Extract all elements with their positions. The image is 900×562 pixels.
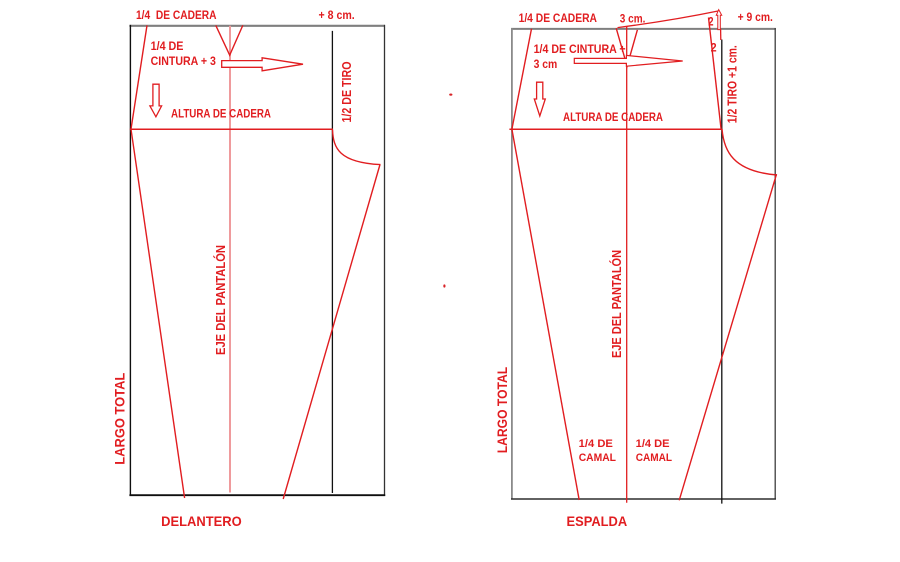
svg-text:2: 2	[708, 17, 713, 29]
svg-text:1/4 DE CINTURA +: 1/4 DE CINTURA +	[534, 44, 626, 56]
svg-text:1/4 DE: 1/4 DE	[151, 41, 184, 53]
svg-text:CAMAL: CAMAL	[579, 452, 617, 464]
svg-text:CAMAL: CAMAL	[636, 452, 673, 464]
svg-text:CINTURA + 3: CINTURA + 3	[151, 56, 216, 68]
svg-text:+ 9 cm.: + 9 cm.	[738, 12, 773, 24]
svg-text:LARGO TOTAL: LARGO TOTAL	[495, 367, 510, 454]
svg-text:1/2 DE TIRO: 1/2 DE TIRO	[340, 61, 354, 122]
svg-text:LARGO TOTAL: LARGO TOTAL	[112, 373, 127, 465]
svg-text:1/4 DE: 1/4 DE	[636, 438, 670, 450]
svg-text:3 cm: 3 cm	[534, 59, 558, 71]
svg-text:1/4 DE CADERA: 1/4 DE CADERA	[136, 10, 217, 22]
svg-text:DELANTERO: DELANTERO	[161, 513, 242, 529]
svg-text:ALTURA DE CADERA: ALTURA DE CADERA	[171, 109, 271, 121]
svg-text:2: 2	[711, 43, 717, 55]
svg-text:ALTURA DE CADERA: ALTURA DE CADERA	[563, 112, 663, 124]
svg-text:EJE DEL PANTALÓN: EJE DEL PANTALÓN	[609, 250, 624, 358]
svg-text:1/4 DE: 1/4 DE	[579, 438, 613, 450]
svg-text:1/2 TIRO +1 cm.: 1/2 TIRO +1 cm.	[726, 45, 740, 123]
svg-text:ESPALDA: ESPALDA	[567, 513, 628, 529]
svg-text:3 cm.: 3 cm.	[620, 13, 646, 25]
svg-text:1/4 DE CADERA: 1/4 DE CADERA	[519, 13, 597, 25]
svg-text:EJE DEL PANTALÓN: EJE DEL PANTALÓN	[213, 245, 228, 355]
svg-text:+ 8 cm.: + 8 cm.	[319, 10, 355, 22]
